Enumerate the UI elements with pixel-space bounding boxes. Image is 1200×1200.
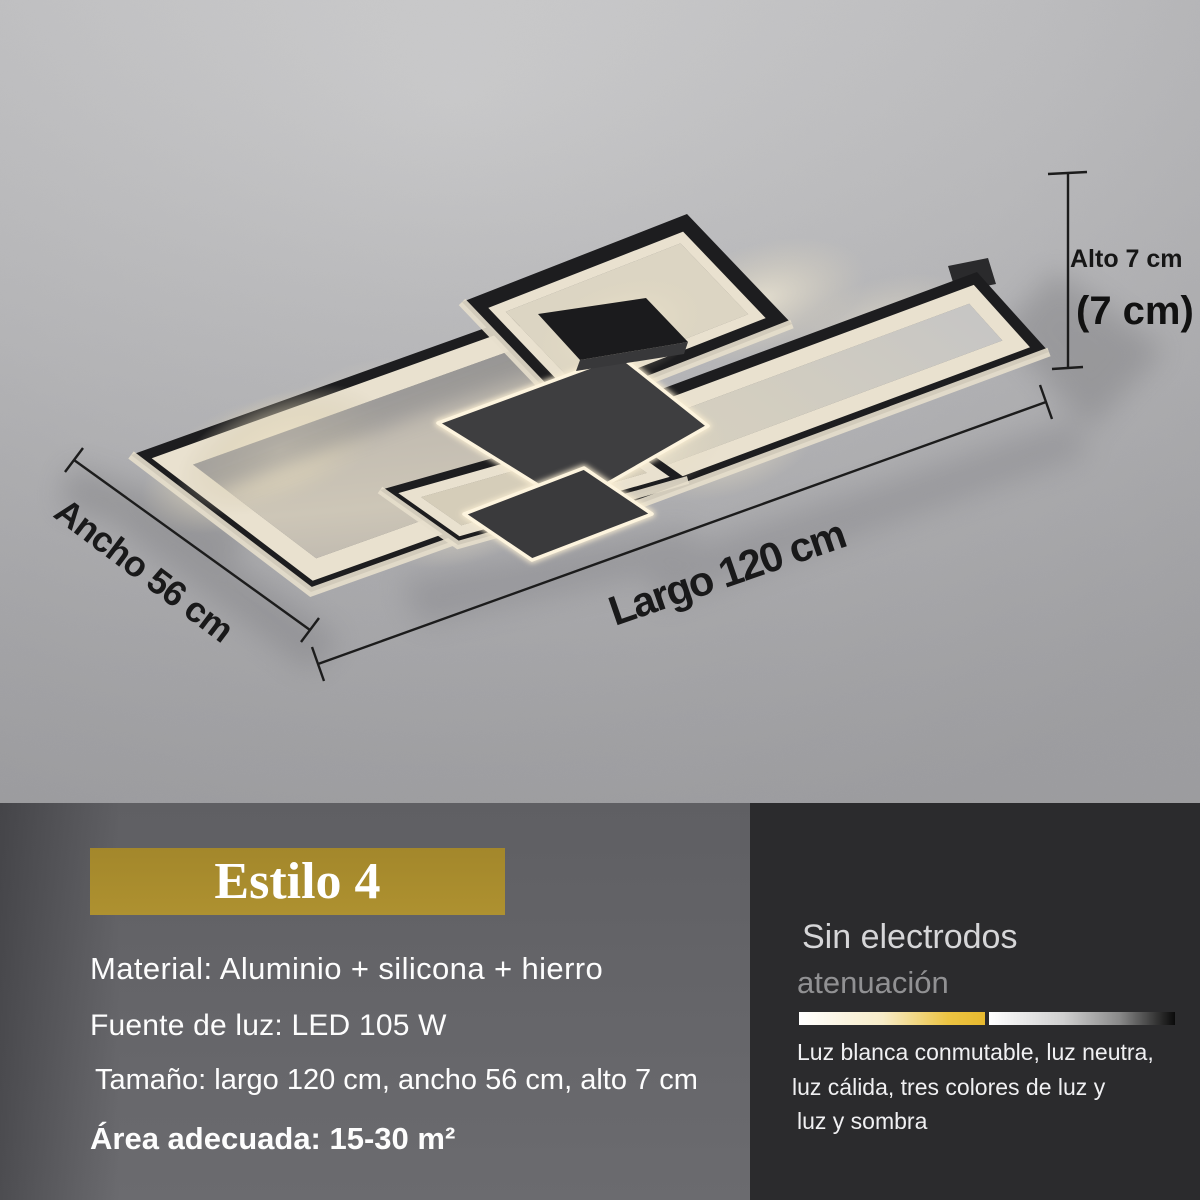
svg-text:Alto 7 cm: Alto 7 cm	[1070, 245, 1183, 273]
svg-text:(7 cm): (7 cm)	[1076, 289, 1194, 333]
